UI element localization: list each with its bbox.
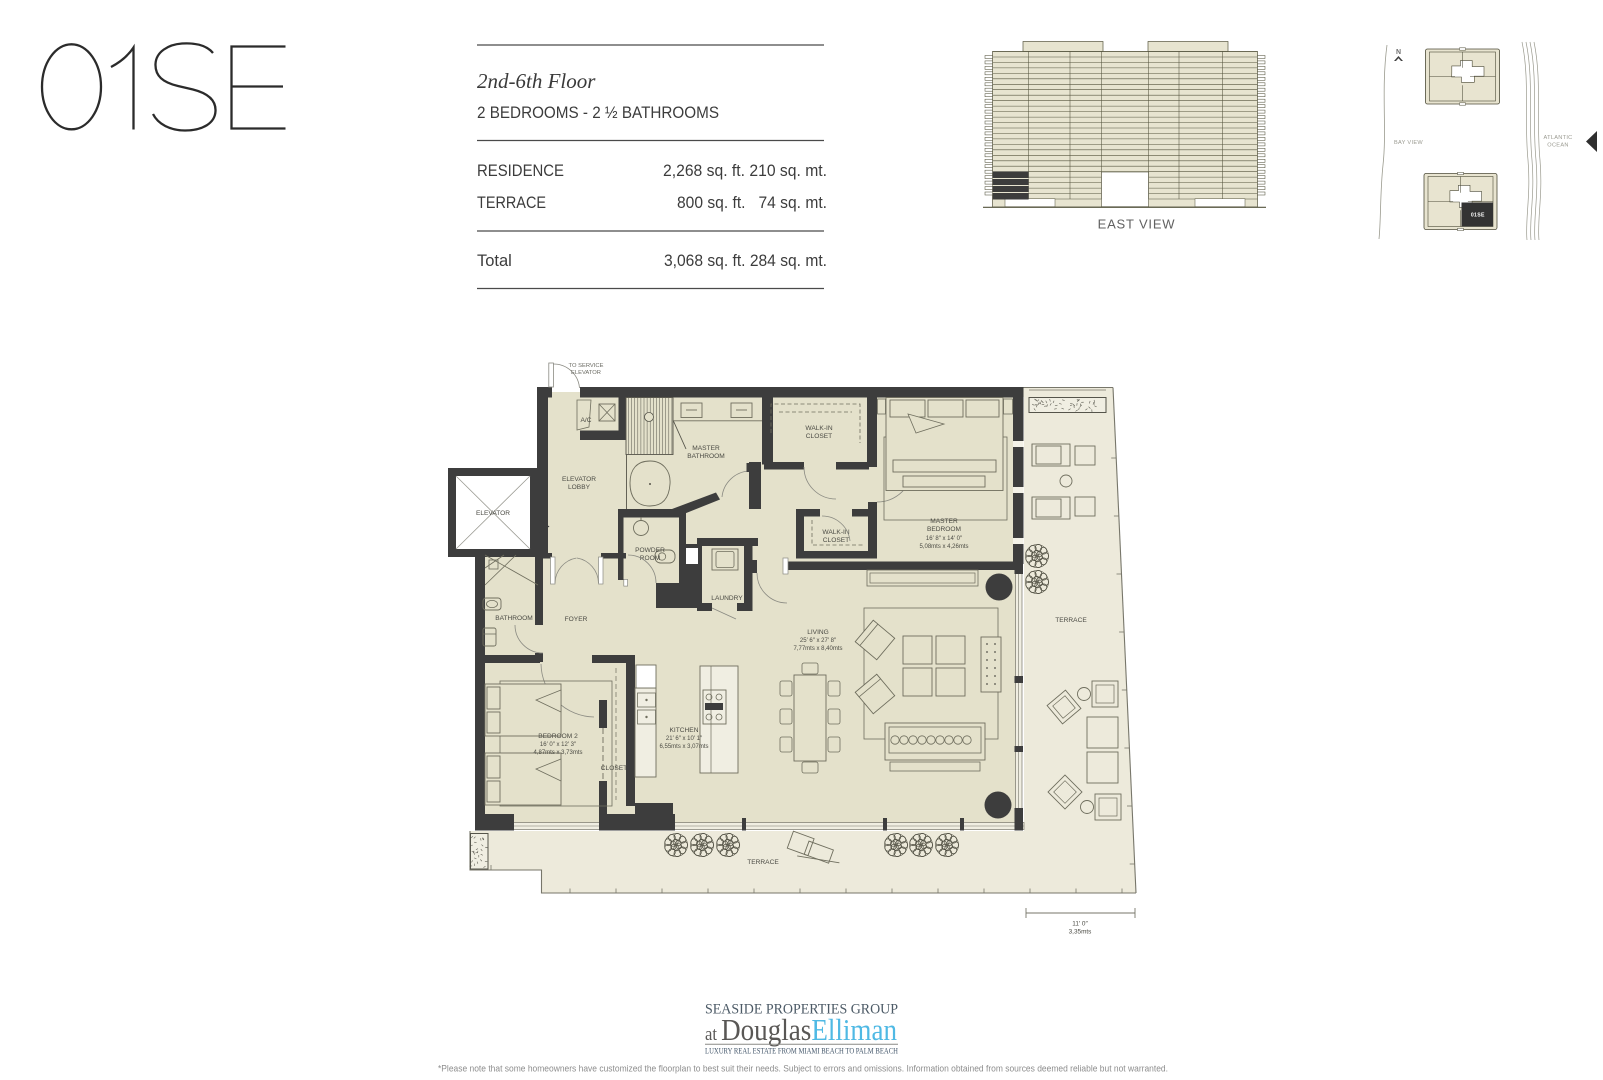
svg-text:7,77mts x 8,40mts: 7,77mts x 8,40mts xyxy=(793,646,842,652)
svg-text:ELEVATOR: ELEVATOR xyxy=(476,510,510,517)
svg-text:MASTER: MASTER xyxy=(930,518,958,525)
svg-text:BATHROOM: BATHROOM xyxy=(495,615,533,622)
svg-text:3,068 sq. ft. 284 sq. mt.: 3,068 sq. ft. 284 sq. mt. xyxy=(664,252,827,270)
svg-text:5,08mts x 4,26mts: 5,08mts x 4,26mts xyxy=(919,544,968,550)
svg-text:16′ 0″ x 12′ 3″: 16′ 0″ x 12′ 3″ xyxy=(540,742,577,748)
svg-text:LOBBY: LOBBY xyxy=(568,484,591,491)
svg-text:OCEAN: OCEAN xyxy=(1547,143,1568,149)
svg-text:16′ 8″ x 14′ 0″: 16′ 8″ x 14′ 0″ xyxy=(926,536,963,542)
svg-text:N: N xyxy=(1396,49,1401,56)
svg-text:LIVING: LIVING xyxy=(807,629,829,636)
svg-text:A/C: A/C xyxy=(581,417,592,424)
svg-text:01SE: 01SE xyxy=(1471,213,1485,219)
svg-text:CLOSET: CLOSET xyxy=(601,765,627,772)
svg-text:FOYER: FOYER xyxy=(565,616,588,623)
svg-text:WALK-IN: WALK-IN xyxy=(805,425,832,432)
svg-text:CLOSET: CLOSET xyxy=(823,537,849,544)
svg-text:21′ 6″ x 10′ 1″: 21′ 6″ x 10′ 1″ xyxy=(666,736,703,742)
svg-text:TERRACE: TERRACE xyxy=(477,194,546,212)
svg-text:TO SERVICE: TO SERVICE xyxy=(569,363,604,369)
svg-text:KITCHEN: KITCHEN xyxy=(670,727,699,734)
svg-text:LAUNDRY: LAUNDRY xyxy=(711,595,743,602)
svg-text:POWDER: POWDER xyxy=(635,547,665,554)
svg-text:6,55mts x 3,07mts: 6,55mts x 3,07mts xyxy=(659,744,708,750)
svg-text:11′ 0″: 11′ 0″ xyxy=(1072,921,1088,928)
svg-text:BAY VIEW: BAY VIEW xyxy=(1394,140,1423,146)
svg-text:BATHROOM: BATHROOM xyxy=(687,453,725,460)
svg-text:ATLANTIC: ATLANTIC xyxy=(1543,135,1572,141)
svg-text:TERRACE: TERRACE xyxy=(1055,617,1087,624)
svg-text:3,35mts: 3,35mts xyxy=(1069,929,1092,936)
svg-text:EAST VIEW: EAST VIEW xyxy=(1098,217,1176,232)
svg-text:ELEVATOR: ELEVATOR xyxy=(562,476,596,483)
svg-text:25′ 6″ x 27′ 8″: 25′ 6″ x 27′ 8″ xyxy=(800,638,837,644)
svg-text:LUXURY REAL ESTATE FROM MIAMI: LUXURY REAL ESTATE FROM MIAMI BEACH TO P… xyxy=(705,1046,898,1056)
svg-text:2,268 sq. ft. 210 sq. mt.: 2,268 sq. ft. 210 sq. mt. xyxy=(663,162,827,180)
svg-text:ELEVATOR: ELEVATOR xyxy=(571,370,601,376)
svg-text:BEDROOM: BEDROOM xyxy=(927,526,961,533)
svg-text:4,87mts x 3,73mts: 4,87mts x 3,73mts xyxy=(533,750,582,756)
svg-text:MASTER: MASTER xyxy=(692,445,720,452)
svg-text:*Please note that some homeown: *Please note that some homeowners have c… xyxy=(438,1064,1168,1074)
svg-text:RESIDENCE: RESIDENCE xyxy=(477,162,564,180)
svg-text:800 sq. ft. 74 sq. mt.: 800 sq. ft. 74 sq. mt. xyxy=(677,194,827,212)
svg-text:TERRACE: TERRACE xyxy=(747,859,779,866)
svg-text:at DouglasElliman: at DouglasElliman xyxy=(705,1012,897,1047)
svg-text:BEDROOM 2: BEDROOM 2 xyxy=(538,733,578,740)
svg-text:2 BEDROOMS - 2 ½ BATHROOMS: 2 BEDROOMS - 2 ½ BATHROOMS xyxy=(477,104,719,122)
svg-text:Total: Total xyxy=(477,252,512,270)
svg-text:WALK-IN: WALK-IN xyxy=(822,529,849,536)
svg-text:2nd-6th Floor: 2nd-6th Floor xyxy=(477,69,596,93)
svg-text:ROOM: ROOM xyxy=(640,555,661,562)
svg-text:CLOSET: CLOSET xyxy=(806,433,832,440)
